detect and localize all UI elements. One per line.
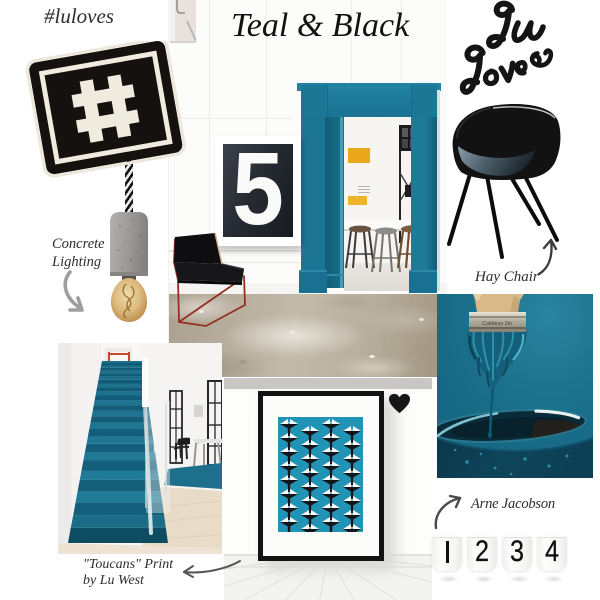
svg-text:Coldless 2in: Coldless 2in (482, 321, 512, 327)
